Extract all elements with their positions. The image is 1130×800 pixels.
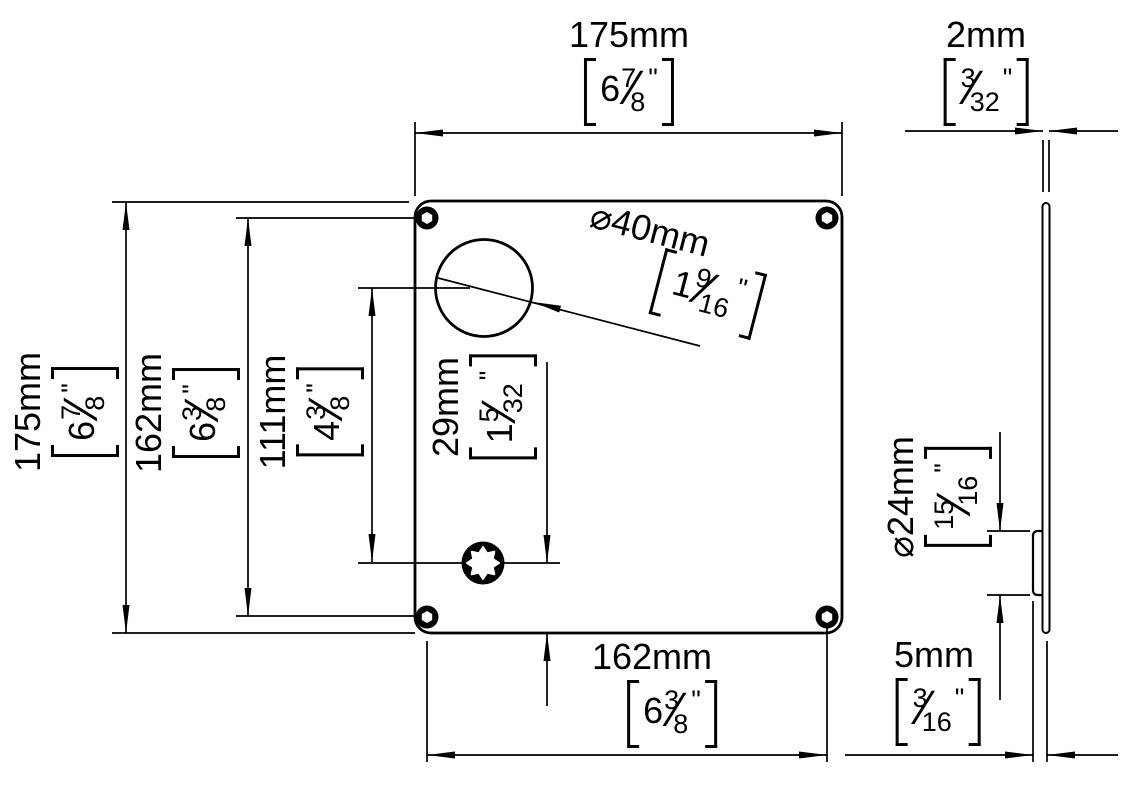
dim-mm-value: 175mm (569, 14, 689, 56)
dim-mm-value: 111mm (252, 355, 294, 470)
plate-side-profile (1043, 203, 1050, 633)
bracket-left (469, 447, 537, 459)
bracket-left (627, 680, 639, 748)
corner-screw-hole (816, 207, 839, 230)
plate-side-view (1033, 203, 1050, 633)
bracket-right (296, 367, 364, 379)
dim-inch-value: 15⁄32" (469, 355, 537, 460)
bracket-right (924, 447, 992, 459)
bracket-left (296, 445, 364, 457)
corner-screw-hole (416, 606, 439, 629)
dim-mm-value: ⌀24mm (880, 436, 922, 558)
bracket-left (584, 58, 596, 126)
dim-inch-value: 3⁄32" (944, 58, 1029, 126)
dim-mm-value: 175mm (7, 352, 49, 472)
dim-mm-value: 29mm (425, 357, 467, 457)
bracket-right (172, 368, 240, 380)
bracket-right (51, 367, 119, 379)
dim-inch-value: 67⁄8" (584, 58, 674, 126)
dim-inch-value: 43⁄8" (296, 367, 364, 457)
dim-label-front-width: 175mm 67⁄8" (569, 14, 689, 126)
bracket-right (705, 680, 717, 748)
dim-label-plate-thickness: 2mm 3⁄32" (944, 14, 1029, 126)
bracket-right (1016, 58, 1028, 126)
bracket-left (51, 445, 119, 457)
dim-mm-value: 2mm (946, 14, 1026, 56)
torx-boss-hole (462, 542, 505, 585)
dim-label-boss-diameter: ⌀24mm 15⁄16" (880, 436, 992, 558)
bracket-left (172, 446, 240, 458)
bracket-left (896, 678, 908, 746)
bracket-right (662, 58, 674, 126)
dim-mm-value: 162mm (128, 353, 170, 473)
dim-label-hole-spacing-vertical: 162mm 63⁄8" (128, 353, 240, 473)
bracket-right (469, 355, 537, 367)
dim-label-front-height: 175mm 67⁄8" (7, 352, 119, 472)
dim-label-center-distance: 111mm 43⁄8" (252, 355, 364, 470)
dim-mm-value: 162mm (592, 636, 712, 678)
dim-inch-value: 63⁄8" (627, 680, 717, 748)
dim-mm-value: 5mm (894, 634, 974, 676)
corner-screw-hole (416, 207, 439, 230)
dim-inch-value: 63⁄8" (172, 368, 240, 458)
dim-label-boss-total-depth: 5mm 3⁄16" (888, 634, 981, 746)
bracket-left (924, 535, 992, 547)
dim-label-torx-edge-offset: 29mm 15⁄32" (425, 355, 537, 460)
dim-label-hole-spacing-horizontal: 162mm 63⁄8" (587, 636, 717, 748)
bracket-left (944, 58, 956, 126)
dim-inch-value: 15⁄16" (924, 447, 992, 547)
corner-screw-hole (816, 606, 839, 629)
technical-drawing: 175mm 67⁄8" 2mm 3⁄32" 175mm 67⁄8" 162mm … (0, 0, 1130, 800)
dim-inch-value: 67⁄8" (51, 367, 119, 457)
bracket-right (968, 678, 980, 746)
dim-inch-value: 3⁄16" (896, 678, 981, 746)
